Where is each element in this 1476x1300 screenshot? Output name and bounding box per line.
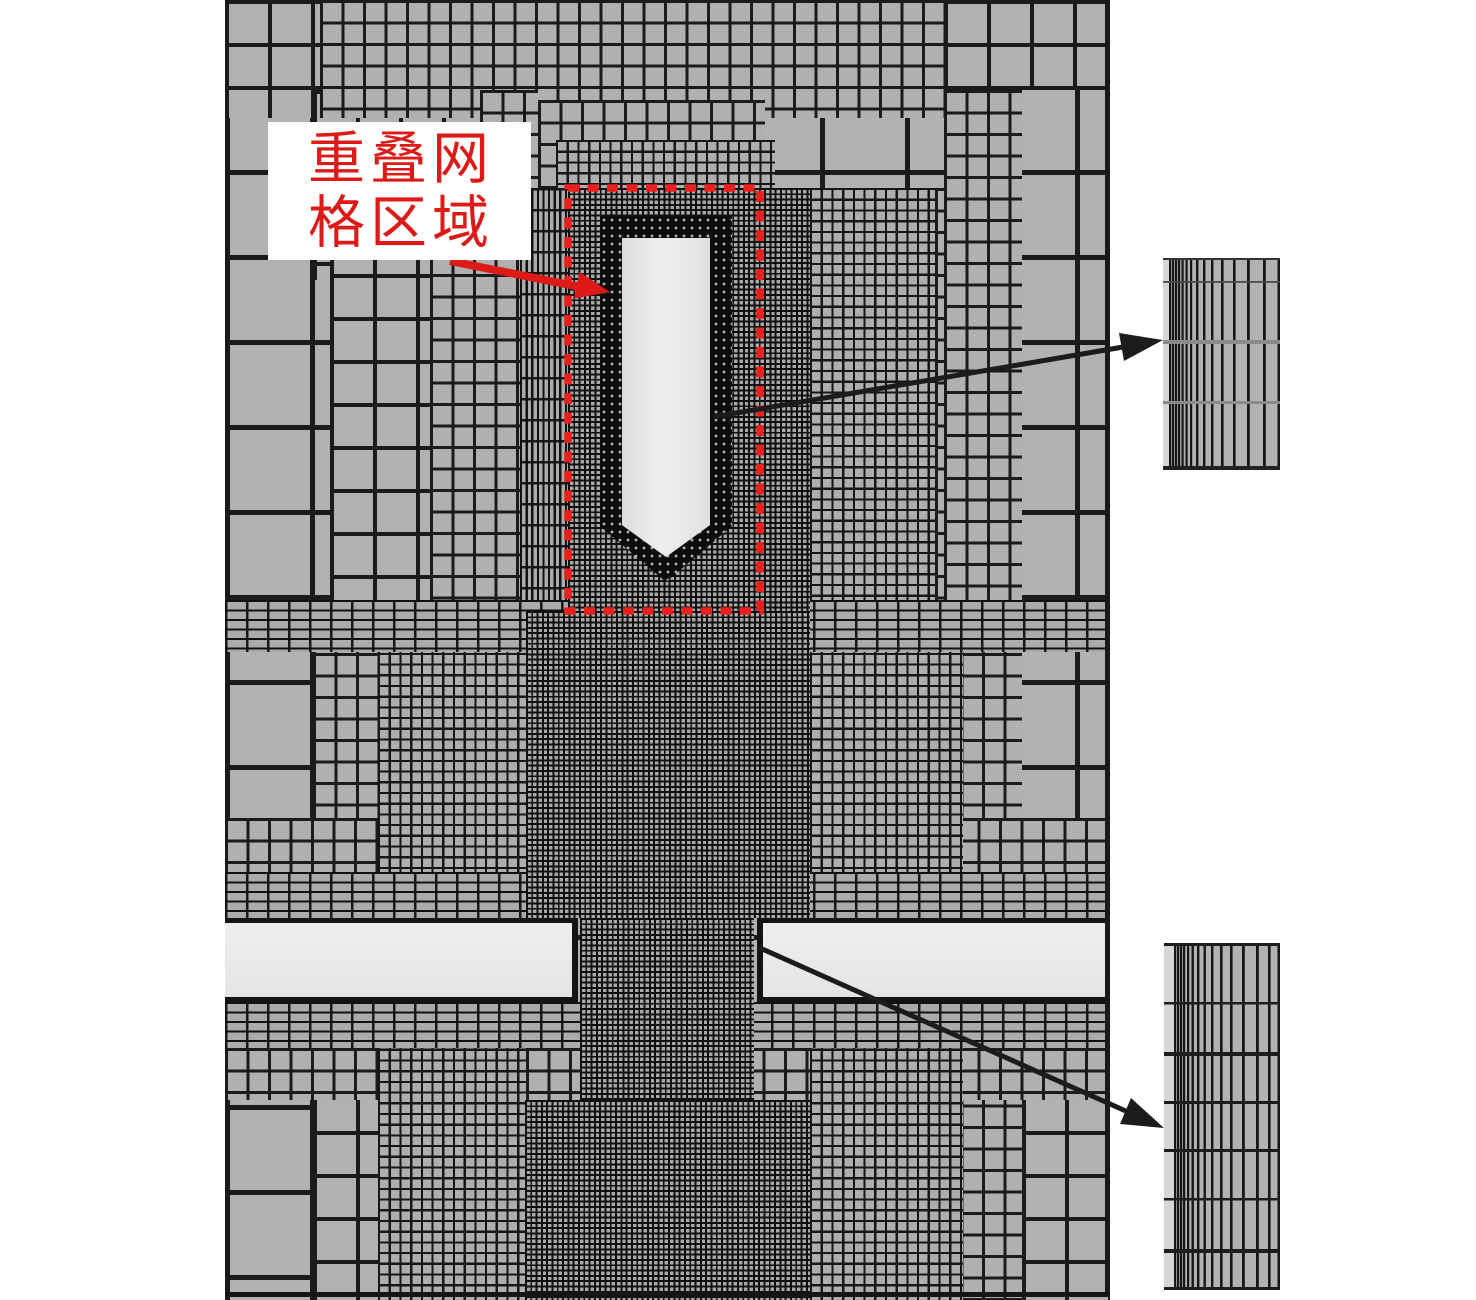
mesh-zone-l3 xyxy=(810,188,935,611)
baffle-left-plate xyxy=(225,918,578,1002)
mesh-zone-lower-column xyxy=(525,1100,810,1300)
detail-inset-upper xyxy=(1163,258,1280,470)
figure-page: 重叠网 格区域 xyxy=(0,0,1476,1300)
mesh-zone-wake xyxy=(526,611,810,918)
projectile-body xyxy=(622,238,710,557)
overset-grid-label: 重叠网 格区域 xyxy=(268,122,531,260)
mesh-zone-l3 xyxy=(556,140,775,188)
label-line-1: 重叠网 xyxy=(308,128,531,192)
mesh-right-edge xyxy=(1105,0,1110,1296)
baffle-right-plate xyxy=(757,918,1110,1002)
mesh-zone-gap-column xyxy=(580,918,754,1100)
label-line-2: 格区域 xyxy=(308,192,531,256)
detail-inset-lower xyxy=(1164,943,1280,1290)
mesh-zone-l1 xyxy=(944,0,1110,90)
mesh-bottom-edge xyxy=(225,1292,1110,1297)
